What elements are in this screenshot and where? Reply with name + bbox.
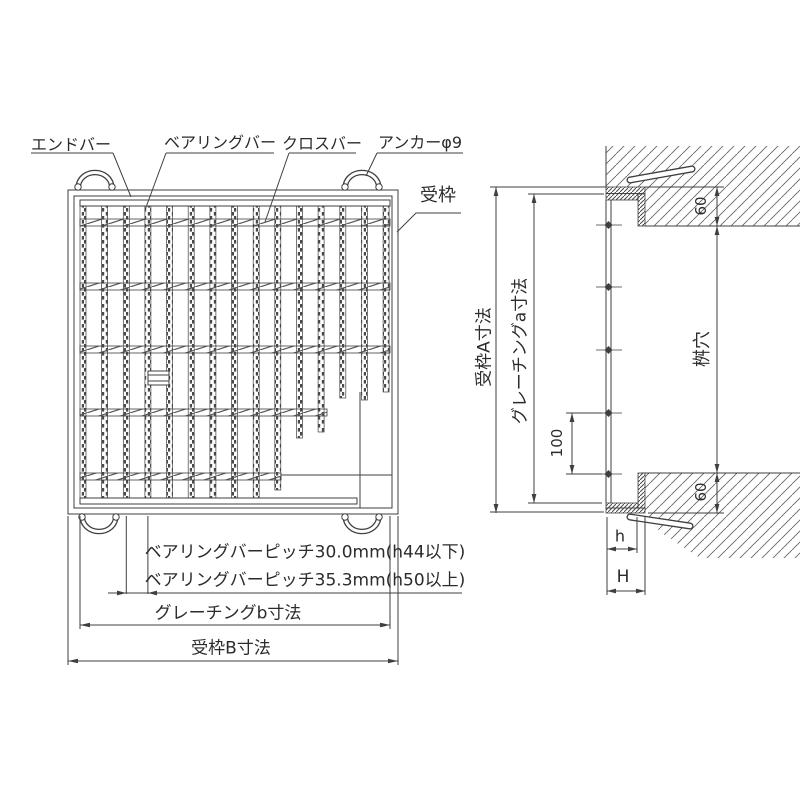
- anchor-handle-top-left: [75, 173, 115, 191]
- side-concrete-bottom: [645, 473, 800, 558]
- grating-technical-drawing: エンドバー ベアリングバー クロスバー アンカーφ9 受枠 ベアリングバーピッチ…: [0, 0, 800, 800]
- label-frame: 受枠: [420, 181, 456, 207]
- label-cross-bar: クロスバー: [282, 130, 362, 154]
- dim-label-frame-a: 受枠A寸法: [470, 307, 495, 387]
- dim-label-60-top: 60: [692, 196, 710, 215]
- dim-label-grating-b: グレーチングb寸法: [155, 599, 302, 624]
- plan-frame-b-dimension: [68, 659, 398, 664]
- plan-end-bar-top: [80, 200, 390, 206]
- anchor-handle-top-right: [342, 173, 382, 191]
- dim-label-H: H: [617, 567, 630, 587]
- dim-label-grating-a: グレーチングa寸法: [506, 278, 531, 424]
- label-bearing-bar: ベアリングバー: [164, 129, 276, 153]
- note-pitch-1: ベアリングバーピッチ30.0mm(h44以下): [145, 538, 466, 563]
- side-grating-a-dimension: [528, 194, 604, 503]
- dim-label-frame-b: 受枠B寸法: [191, 634, 271, 659]
- dim-label-100: 100: [548, 429, 566, 458]
- dim-label-pit-hole: 桝穴: [688, 331, 714, 367]
- dim-label-h: h: [615, 527, 625, 546]
- side-anchor-points: [596, 221, 622, 478]
- note-pitch-2: ベアリングバーピッチ35.3mm(h50以上): [145, 566, 466, 591]
- label-anchor-phi9: アンカーφ9: [378, 129, 462, 153]
- side-view: [490, 146, 800, 595]
- side-anchor-pitch-dimension: [566, 413, 602, 474]
- anchor-handle-bottom-right: [342, 514, 382, 532]
- side-pit-dimension: [715, 226, 720, 473]
- plan-pitch-dimension: [108, 591, 462, 596]
- anchor-handle-bottom-left: [79, 514, 119, 532]
- plan-saddle-clip: [148, 371, 169, 385]
- dim-label-60-bottom: 60: [692, 482, 710, 501]
- drawing-linework: [0, 0, 800, 800]
- label-end-bar: エンドバー: [31, 131, 111, 155]
- plan-end-bar-bottom: [80, 498, 357, 504]
